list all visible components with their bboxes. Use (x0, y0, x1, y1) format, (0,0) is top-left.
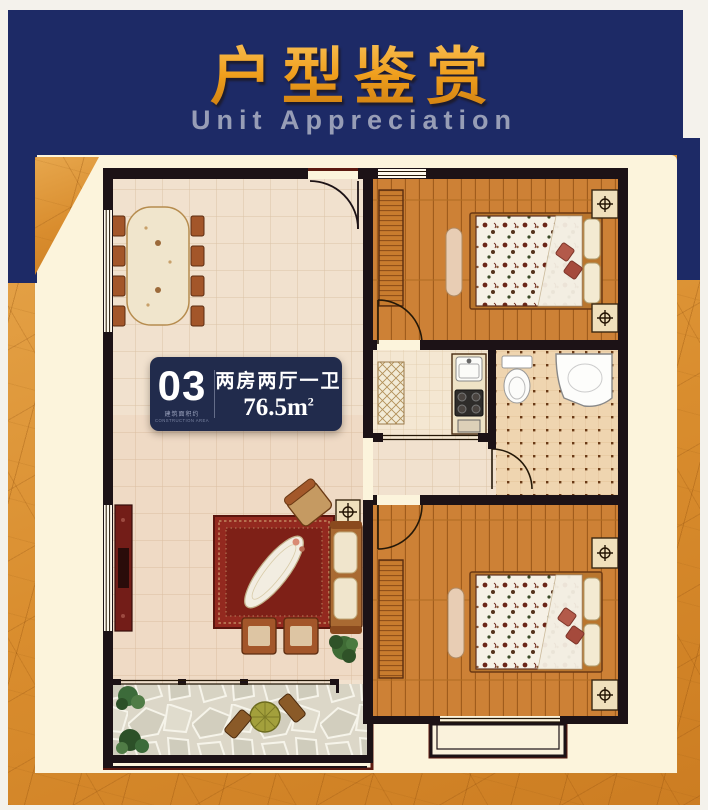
dining-table (127, 207, 189, 325)
wardrobe (379, 560, 403, 678)
page-title: 户型鉴赏 (0, 26, 708, 116)
poster-canvas: 户型鉴赏 Unit Appreciation (0, 0, 708, 810)
stove (455, 390, 483, 416)
bed (470, 213, 602, 309)
hallway-floor (373, 440, 496, 495)
bed (470, 572, 602, 672)
nightstand (592, 190, 618, 218)
area-superscript: 2 (308, 395, 314, 409)
badge-divider (214, 370, 215, 418)
layout-type: 两房两厅一卫 (215, 366, 342, 393)
area-value: 76.5m2 (215, 394, 342, 422)
unit-number: 03 (150, 365, 214, 407)
bathtub (556, 354, 612, 406)
unit-details-block: 两房两厅一卫 76.5m2 (215, 366, 342, 422)
nightstand (592, 680, 618, 710)
area-number: 76.5m (243, 394, 308, 421)
small-balcony-floor (431, 724, 565, 755)
tv (118, 548, 129, 588)
nightstand (592, 304, 618, 332)
construction-area-label-en: CONSTRUCTION AREA (155, 418, 209, 423)
kitchen-mat (378, 362, 404, 424)
floorplan-drawing (103, 167, 628, 770)
body-pillow (448, 588, 464, 658)
toilet (502, 356, 532, 403)
sofa (330, 521, 362, 634)
construction-area-label-cn: 建筑面积约 (150, 409, 214, 418)
unit-number-block: 03 建筑面积约 CONSTRUCTION AREA (150, 365, 214, 424)
wardrobe (379, 190, 403, 306)
sink (456, 357, 482, 381)
navy-right-column (677, 138, 700, 280)
body-pillow (446, 228, 462, 296)
navy-left-column (8, 155, 37, 283)
unit-info-badge: 03 建筑面积约 CONSTRUCTION AREA 两房两厅一卫 76.5m2 (150, 357, 342, 431)
kitchen-appliance (458, 420, 480, 432)
page-subtitle: Unit Appreciation (0, 105, 708, 136)
nightstand (592, 538, 618, 568)
